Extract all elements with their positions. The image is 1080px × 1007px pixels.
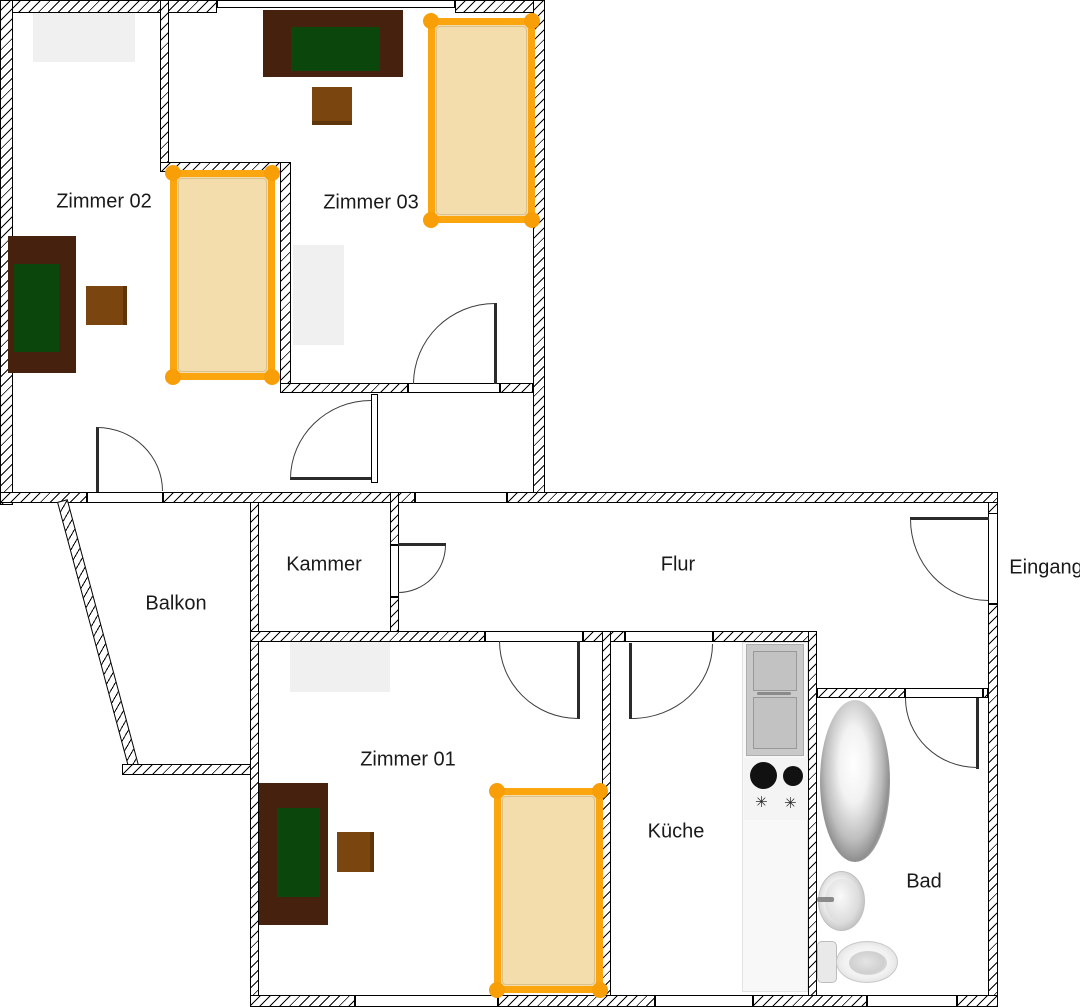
- wall-bottom-c: [753, 995, 867, 1007]
- wall-flur-top: [507, 492, 998, 503]
- bed-post-icon: [524, 13, 540, 29]
- door-arc-bad: [905, 698, 977, 768]
- door-opening-balkon: [87, 492, 163, 503]
- refrigerator-icon: [746, 644, 804, 756]
- bed-post-icon: [592, 783, 608, 799]
- wall-bottom-d: [957, 995, 998, 1007]
- window-zimmer01: [355, 995, 498, 1007]
- door-opening-passage: [371, 394, 378, 483]
- toilet-bowl-icon: [836, 941, 898, 983]
- desk-top-zimmer01: [277, 808, 320, 897]
- bed-post-icon: [423, 212, 439, 228]
- bed-post-icon: [489, 982, 505, 998]
- window-kueche: [655, 995, 753, 1007]
- wall-south-of-z02-a: [0, 492, 87, 503]
- wall-balkon-slanted: [57, 499, 141, 774]
- burner-flame-icon: ✳: [755, 795, 768, 810]
- wall-divider-z02-z03-top: [160, 0, 169, 170]
- wall-mid-south-c: [713, 631, 817, 642]
- wall-bad-top-west: [817, 688, 905, 698]
- bed-post-icon: [165, 165, 181, 181]
- wall-bottom-a: [250, 995, 355, 1007]
- burner-flame-icon: ✳: [784, 796, 797, 811]
- door-opening-zimmer03: [408, 383, 500, 393]
- refrigerator-handle-icon: [757, 692, 791, 695]
- chair-zimmer02: [86, 286, 127, 325]
- wall-kueche-right: [808, 631, 817, 1007]
- toilet-bowl-inner: [849, 951, 887, 975]
- wall-outer-right-bottom: [988, 604, 998, 1007]
- wall-balkon-bottom: [122, 764, 259, 775]
- door-arc-eingang: [910, 519, 988, 601]
- bed-post-icon: [264, 165, 280, 181]
- wall-top-west: [0, 0, 217, 13]
- wall-mid-south-a: [250, 631, 485, 642]
- bed-post-icon: [489, 783, 505, 799]
- room-label-eingang: Eingang: [1009, 557, 1080, 580]
- door-arc-zimmer03: [413, 303, 495, 384]
- wall-zimmer01-left: [250, 502, 259, 1007]
- faucet-icon: [817, 897, 834, 902]
- desk-top-zimmer03: [291, 27, 380, 71]
- room-label-kueche: Küche: [648, 821, 705, 844]
- door-opening-bad: [905, 688, 983, 698]
- door-arc-kammer: [398, 545, 446, 593]
- bed-post-icon: [423, 13, 439, 29]
- bed-post-icon: [264, 369, 280, 385]
- burner-small-icon: [783, 766, 803, 786]
- wardrobe-zimmer03: [293, 245, 344, 345]
- wall-bad-top-east: [983, 688, 988, 698]
- room-label-flur: Flur: [661, 554, 695, 577]
- room-label-zimmer02: Zimmer 02: [56, 191, 152, 214]
- toilet-tank-icon: [817, 941, 837, 983]
- floor-plan: ✳ ✳ Zimmer 02 Zimmer 03 Kammer Balkon Fl…: [0, 0, 1080, 1007]
- chair-zimmer01: [337, 832, 374, 872]
- wardrobe-zimmer02: [33, 13, 135, 62]
- wardrobe-zimmer01: [290, 642, 390, 692]
- window-bad: [867, 995, 957, 1007]
- door-arc-balkon: [97, 427, 163, 491]
- bed-post-icon: [165, 369, 181, 385]
- wall-zimmer03-south-east: [500, 383, 533, 393]
- wall-divider-z02-z03-low: [280, 162, 291, 393]
- door-opening-kueche: [625, 631, 713, 642]
- refrigerator-door-upper: [753, 651, 797, 691]
- bed-zimmer01: [494, 788, 603, 993]
- desk-top-zimmer02: [14, 264, 59, 352]
- corridor-opening-flur: [415, 492, 507, 503]
- room-label-zimmer03: Zimmer 03: [323, 192, 419, 215]
- door-opening-eingang: [988, 513, 998, 604]
- room-label-zimmer01: Zimmer 01: [360, 749, 456, 772]
- door-arc-kueche: [632, 644, 713, 719]
- wall-zimmer01-right: [602, 631, 611, 1007]
- bed-zimmer03: [428, 18, 535, 223]
- wall-kammer-right-top: [390, 492, 399, 545]
- wall-bottom-b: [498, 995, 655, 1007]
- room-label-balkon: Balkon: [145, 593, 206, 616]
- bed-post-icon: [524, 212, 540, 228]
- desk-zimmer03: [263, 10, 403, 77]
- chair-zimmer03: [312, 87, 352, 125]
- desk-zimmer01: [259, 783, 328, 925]
- window-top: [217, 0, 455, 8]
- door-arc-zimmer01: [499, 641, 578, 719]
- bed-zimmer02: [170, 170, 275, 380]
- bed-post-icon: [592, 982, 608, 998]
- wall-zimmer03-south-west: [280, 383, 408, 393]
- room-label-kammer: Kammer: [286, 554, 362, 577]
- bathtub-icon: [820, 700, 890, 862]
- door-arc-passage: [290, 400, 371, 479]
- refrigerator-door-lower: [753, 697, 797, 749]
- wall-top-east: [455, 0, 545, 13]
- cooktop-icon: ✳ ✳: [744, 758, 808, 820]
- desk-zimmer02: [8, 236, 76, 373]
- room-label-bad: Bad: [906, 871, 942, 894]
- wall-south-of-z02-b: [163, 492, 415, 503]
- burner-large-icon: [750, 762, 777, 789]
